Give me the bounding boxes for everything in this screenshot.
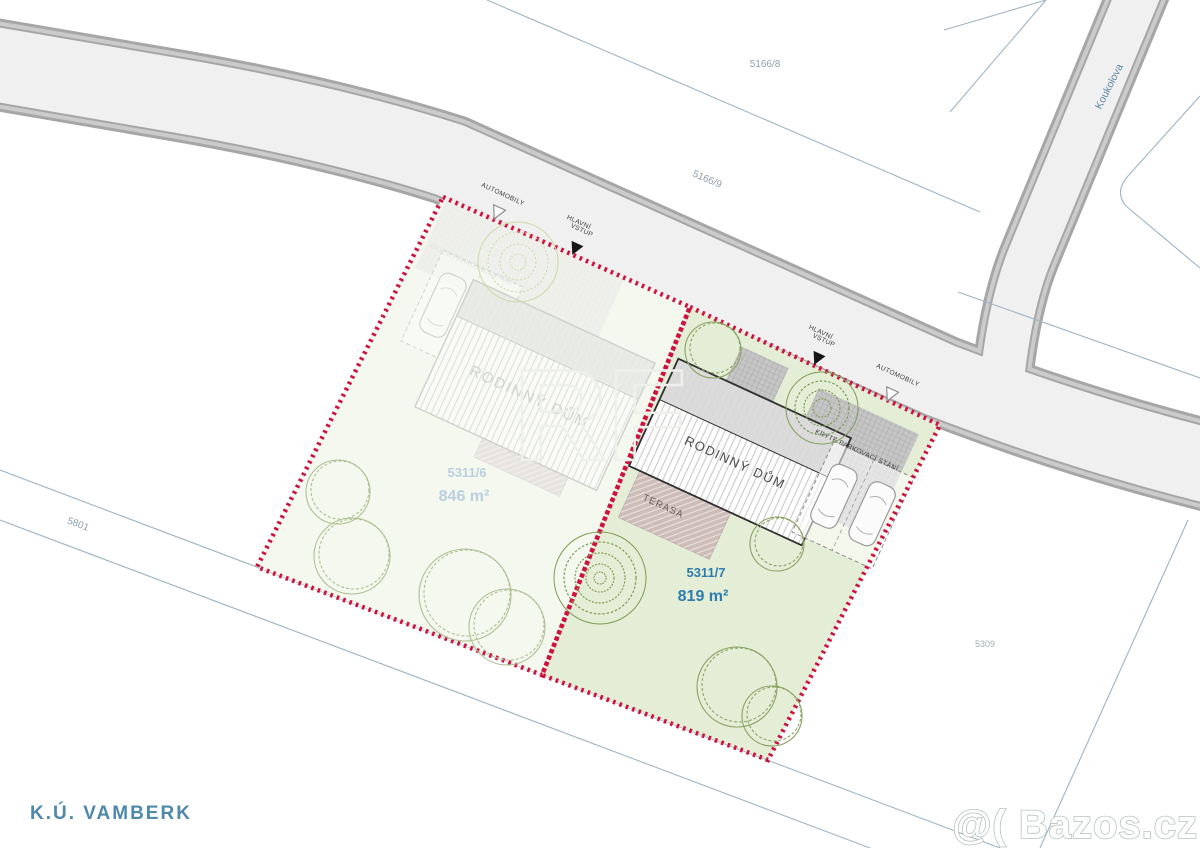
plot-right-number: 5311/7: [686, 565, 725, 580]
ghost-watermark: RF: [513, 342, 686, 488]
parcel-5309-label: 5309: [975, 639, 995, 649]
bazos-watermark: @( Bazos.cz: [952, 803, 1198, 847]
region-label: K.Ú. VAMBERK: [30, 802, 192, 824]
plot-left-area-label: 846 m²: [439, 488, 490, 505]
site-plan-map: TERASA RODINNÝ DŮM KRYTÉ PARKOVACÍ STÁNÍ…: [0, 0, 1200, 848]
plot-left-number: 5311/6: [447, 465, 486, 480]
parcel-5166-8-label: 5166/8: [750, 59, 781, 70]
plot-right-area-label: 819 m²: [678, 588, 729, 605]
